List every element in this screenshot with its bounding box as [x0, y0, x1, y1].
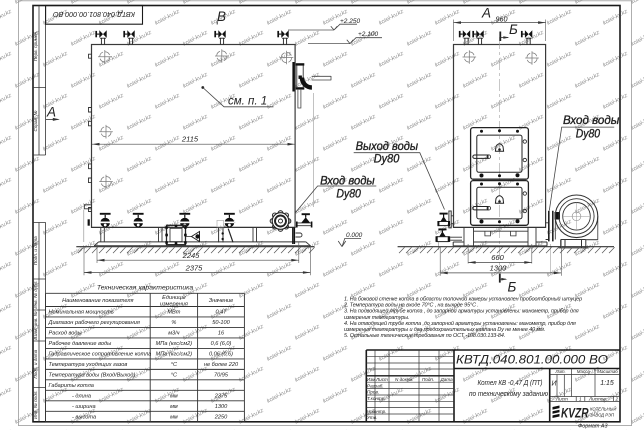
svg-text:2. Температура воды на входе: 2. Температура воды на входе 70°С , на в…: [343, 303, 479, 309]
svg-text:Вход воды: Вход воды: [563, 113, 620, 127]
svg-text:Масса: Масса: [577, 369, 591, 374]
svg-text:Dy80: Dy80: [336, 187, 361, 201]
svg-text:Н.контр.: Н.контр.: [367, 409, 386, 414]
svg-text:Инв. № подл.: Инв. № подл.: [33, 390, 38, 419]
svg-text:Изм: Изм: [367, 377, 376, 382]
svg-text:Диапазон рабочего регулировани: Диапазон рабочего регулирования: [48, 320, 140, 326]
svg-text:50-100: 50-100: [212, 320, 230, 326]
svg-text:Б: Б: [509, 22, 518, 37]
svg-text:Габариты котла: Габариты котла: [49, 383, 94, 389]
svg-text:Номинальная мощность: Номинальная мощность: [49, 310, 114, 316]
svg-text:Справ. №: Справ. №: [33, 111, 38, 132]
svg-text:1300: 1300: [490, 264, 508, 273]
svg-text:Б: Б: [508, 280, 517, 295]
svg-text:70/95: 70/95: [214, 373, 229, 379]
svg-text:°С: °С: [171, 362, 178, 368]
svg-text:мм: мм: [170, 404, 178, 410]
svg-text:мм: мм: [170, 415, 178, 421]
svg-text:1:15: 1:15: [600, 380, 614, 387]
svg-text:КВТД.040.801.00.000 ВО: КВТД.040.801.00.000 ВО: [456, 353, 608, 367]
svg-text:Пров.: Пров.: [367, 390, 379, 395]
svg-text:Техническая характеристика: Техническая характеристика: [97, 285, 193, 292]
svg-text:В: В: [217, 9, 226, 24]
svg-text:мм: мм: [170, 394, 178, 400]
svg-text:4. На отводящей трубе котла ,: 4. На отводящей трубе котла ,до запорной…: [344, 320, 576, 327]
svg-text:0.000: 0.000: [346, 232, 363, 239]
svg-text:Лист: Лист: [375, 377, 388, 382]
svg-text:Температура уходящих газов: Температура уходящих газов: [49, 362, 128, 368]
svg-text:°С: °С: [171, 373, 178, 379]
svg-text:660: 660: [491, 253, 504, 262]
svg-text:Единицы: Единицы: [162, 295, 185, 301]
svg-text:м3/ч: м3/ч: [168, 331, 179, 337]
svg-text:1. На боковой стенке котла в: 1. На боковой стенке котла в области топ…: [344, 296, 582, 303]
svg-text:измерения температуры и два пр: измерения температуры и два предохраните…: [344, 327, 545, 333]
svg-text:0,6 (6,0): 0,6 (6,0): [211, 341, 232, 347]
svg-text:Подп. и дата: Подп. и дата: [33, 349, 38, 378]
svg-text:Лист: Лист: [555, 397, 568, 402]
svg-text:Т.контр.: Т.контр.: [367, 396, 386, 401]
svg-text:- длина: - длина: [72, 394, 91, 400]
svg-text:Котел КВ -0,47 Д (ПТ): Котел КВ -0,47 Д (ПТ): [478, 378, 543, 387]
svg-text:Вход воды: Вход воды: [320, 174, 375, 188]
svg-text:5. Остальные технические треб: 5. Остальные технические требования по О…: [344, 333, 505, 339]
svg-text:МВт: МВт: [167, 310, 180, 316]
svg-text:КОТЕЛЬНЫЙ: КОТЕЛЬНЫЙ: [590, 407, 616, 412]
svg-text:Инв. № дубл.: Инв. № дубл.: [33, 280, 38, 308]
svg-text:- ширина: - ширина: [72, 404, 96, 410]
svg-text:2250: 2250: [214, 415, 228, 421]
svg-text:см. п. 1: см. п. 1: [228, 96, 267, 108]
svg-text:Подп. и дата: Подп. и дата: [33, 236, 38, 265]
svg-text:2245: 2245: [182, 251, 201, 260]
svg-text:Значение: Значение: [209, 298, 234, 304]
svg-text:Взам. инв. №: Взам. инв. №: [33, 311, 38, 339]
svg-text:Гидравлическое сопротивление к: Гидравлическое сопротивление котла: [49, 352, 152, 358]
svg-text:3. На подводящей трубе котла: 3. На подводящей трубе котла , до запорн…: [344, 308, 579, 315]
svg-text:не более 220: не более 220: [204, 362, 239, 368]
svg-text:Разраб.: Разраб.: [367, 383, 384, 388]
svg-text:KVZR: KVZR: [561, 406, 589, 421]
svg-text:по техническому заданию: по техническому заданию: [469, 389, 549, 398]
svg-text:2375: 2375: [185, 263, 204, 272]
svg-text:Dy80: Dy80: [374, 152, 400, 166]
svg-text:- высота: - высота: [72, 415, 96, 421]
svg-text:измерения температуры.: измерения температуры.: [344, 315, 409, 321]
svg-text:960: 960: [496, 15, 508, 24]
svg-text:Рабочее давление воды: Рабочее давление воды: [49, 341, 112, 347]
svg-text:%: %: [171, 320, 176, 326]
svg-text:Утв.: Утв.: [367, 415, 377, 420]
svg-text:+2.250: +2.250: [340, 18, 360, 25]
svg-text:А: А: [481, 6, 491, 21]
svg-text:А: А: [46, 105, 56, 120]
svg-text:ЗАВОД РЭП: ЗАВОД РЭП: [590, 413, 615, 418]
svg-text:Температура воды (Вход/Выход): Температура воды (Вход/Выход): [49, 373, 136, 379]
svg-text:Листов: Листов: [588, 397, 606, 402]
svg-text:16: 16: [218, 331, 225, 337]
svg-text:Расход воды: Расход воды: [49, 331, 82, 337]
svg-text:+2.100: +2.100: [358, 31, 378, 38]
svg-text:И: И: [552, 381, 558, 388]
svg-text:измерения: измерения: [160, 301, 188, 307]
svg-text:2115: 2115: [181, 135, 199, 144]
svg-text:КВТД.040.801.00.000 ВО: КВТД.040.801.00.000 ВО: [53, 10, 135, 19]
svg-text:2: 2: [615, 397, 619, 402]
svg-text:МПа (кгс/см2): МПа (кгс/см2): [156, 352, 193, 358]
svg-text:1300: 1300: [215, 404, 228, 410]
svg-text:N докум.: N докум.: [395, 377, 414, 382]
svg-text:Формат А3: Формат А3: [578, 423, 608, 429]
svg-text:Масштаб: Масштаб: [597, 369, 618, 374]
svg-text:1: 1: [579, 397, 582, 402]
svg-text:Перв. примен.: Перв. примен.: [33, 31, 38, 62]
svg-text:0,47: 0,47: [216, 310, 228, 316]
svg-text:МПа (кгс/см2): МПа (кгс/см2): [156, 341, 193, 347]
svg-text:0,06 (0,6): 0,06 (0,6): [209, 352, 233, 358]
svg-text:Подп.: Подп.: [422, 377, 434, 382]
svg-text:Dy80: Dy80: [576, 127, 601, 141]
svg-text:Лит.: Лит.: [554, 369, 565, 374]
svg-text:Наименование показателя: Наименование показателя: [62, 298, 133, 304]
svg-text:Дата: Дата: [440, 377, 454, 382]
svg-text:2375: 2375: [214, 394, 228, 400]
